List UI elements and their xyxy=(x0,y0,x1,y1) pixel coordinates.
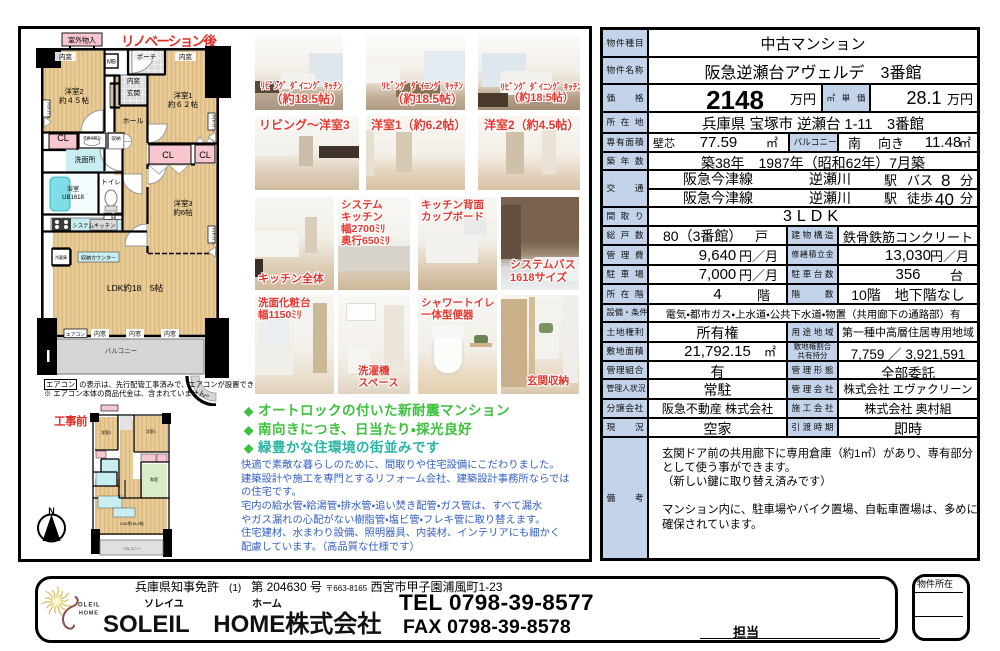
svg-text:LDK約18 5帖: LDK約18 5帖 xyxy=(107,283,164,293)
svg-text:内窓: 内窓 xyxy=(129,330,141,338)
svg-text:約６２帖: 約６２帖 xyxy=(168,99,198,109)
svg-text:冷蔵庫: 冷蔵庫 xyxy=(55,254,67,260)
svg-text:CL: CL xyxy=(162,150,174,160)
svg-text:内窓: 内窓 xyxy=(179,52,193,61)
svg-text:システムキッチン: システムキッチン xyxy=(73,223,116,230)
svg-text:洗面所: 洗面所 xyxy=(75,155,96,164)
svg-text:洋室2: 洋室2 xyxy=(101,429,112,435)
svg-text:洋室3: 洋室3 xyxy=(173,198,192,208)
svg-text:洋室2: 洋室2 xyxy=(64,86,83,96)
svg-text:HOME: HOME xyxy=(79,611,99,617)
svg-text:UB1618: UB1618 xyxy=(62,195,84,201)
svg-text:内窓: 内窓 xyxy=(164,330,176,338)
svg-text:トイレ: トイレ xyxy=(101,179,121,186)
svg-text:室外物入: 室外物入 xyxy=(68,36,96,45)
svg-text:バルコニー: バルコニー xyxy=(123,547,141,551)
svg-text:和室: 和室 xyxy=(150,476,158,482)
svg-text:洗面化粧台: 洗面化粧台 xyxy=(83,135,101,140)
svg-text:ポーチ: ポーチ xyxy=(137,53,157,61)
svg-text:MB: MB xyxy=(107,60,116,66)
svg-text:内窓: 内窓 xyxy=(127,76,141,85)
svg-text:収納カウンター: 収納カウンター xyxy=(81,255,116,262)
svg-text:エアコン: エアコン xyxy=(212,115,217,133)
svg-text:洋室1: 洋室1 xyxy=(146,428,157,434)
svg-text:エアコン: エアコン xyxy=(66,332,85,338)
svg-text:バルコニー: バルコニー xyxy=(105,347,137,355)
svg-text:内窓: 内窓 xyxy=(94,330,106,338)
svg-text:エアコン: エアコン xyxy=(212,228,217,246)
svg-text:玄関: 玄関 xyxy=(127,88,140,97)
svg-text:洋室1: 洋室1 xyxy=(173,90,192,100)
svg-text:CL: CL xyxy=(57,133,69,143)
svg-text:約6帖: 約6帖 xyxy=(173,207,193,217)
svg-text:LDK約18.2帖: LDK約18.2帖 xyxy=(120,520,144,526)
svg-text:内窓: 内窓 xyxy=(59,52,73,61)
svg-text:OLEIL: OLEIL xyxy=(78,603,101,609)
svg-text:収納: 収納 xyxy=(111,135,121,142)
svg-text:約４５帖: 約４５帖 xyxy=(59,95,89,105)
svg-text:エアコン: エアコン xyxy=(47,102,52,120)
svg-text:浴室: 浴室 xyxy=(67,185,79,193)
svg-text:ホール: ホール xyxy=(123,117,144,125)
svg-text:CL: CL xyxy=(199,150,211,160)
